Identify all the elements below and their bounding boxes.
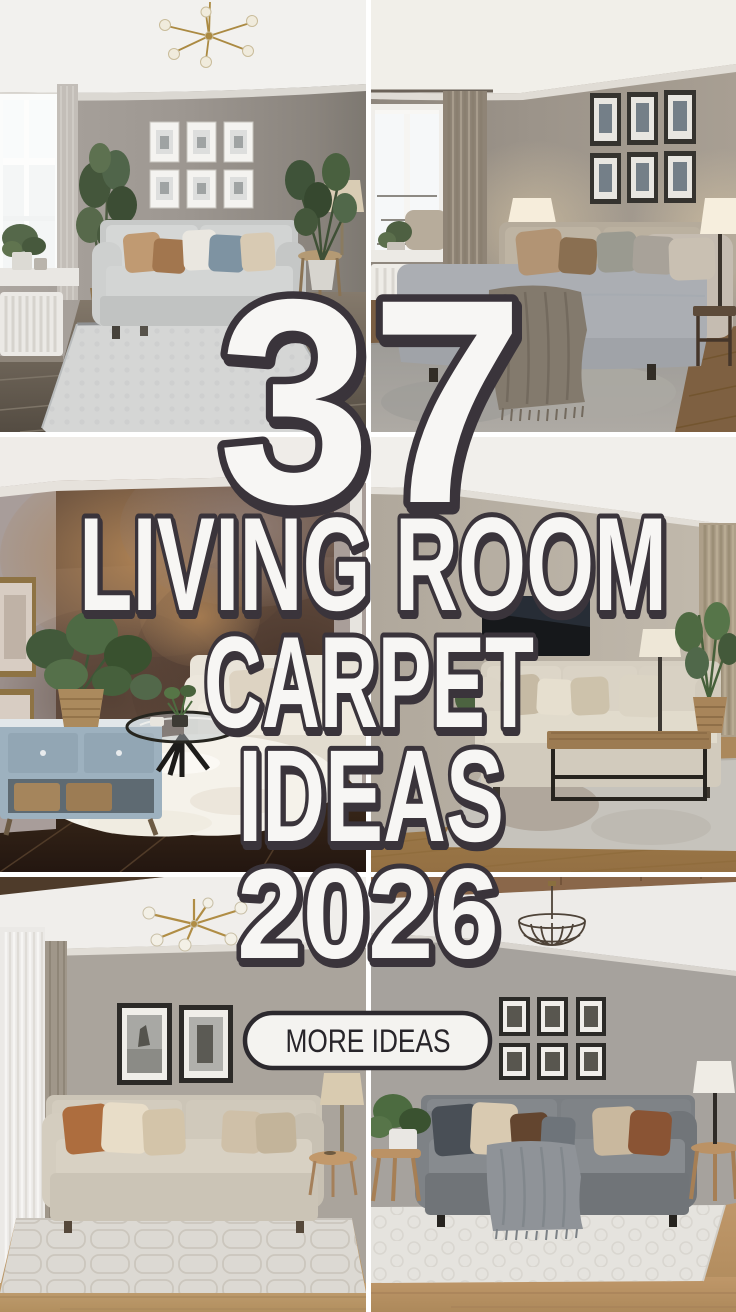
svg-text:MORE IDEAS: MORE IDEAS (286, 1023, 451, 1059)
svg-text:2026: 2026 (237, 843, 499, 986)
